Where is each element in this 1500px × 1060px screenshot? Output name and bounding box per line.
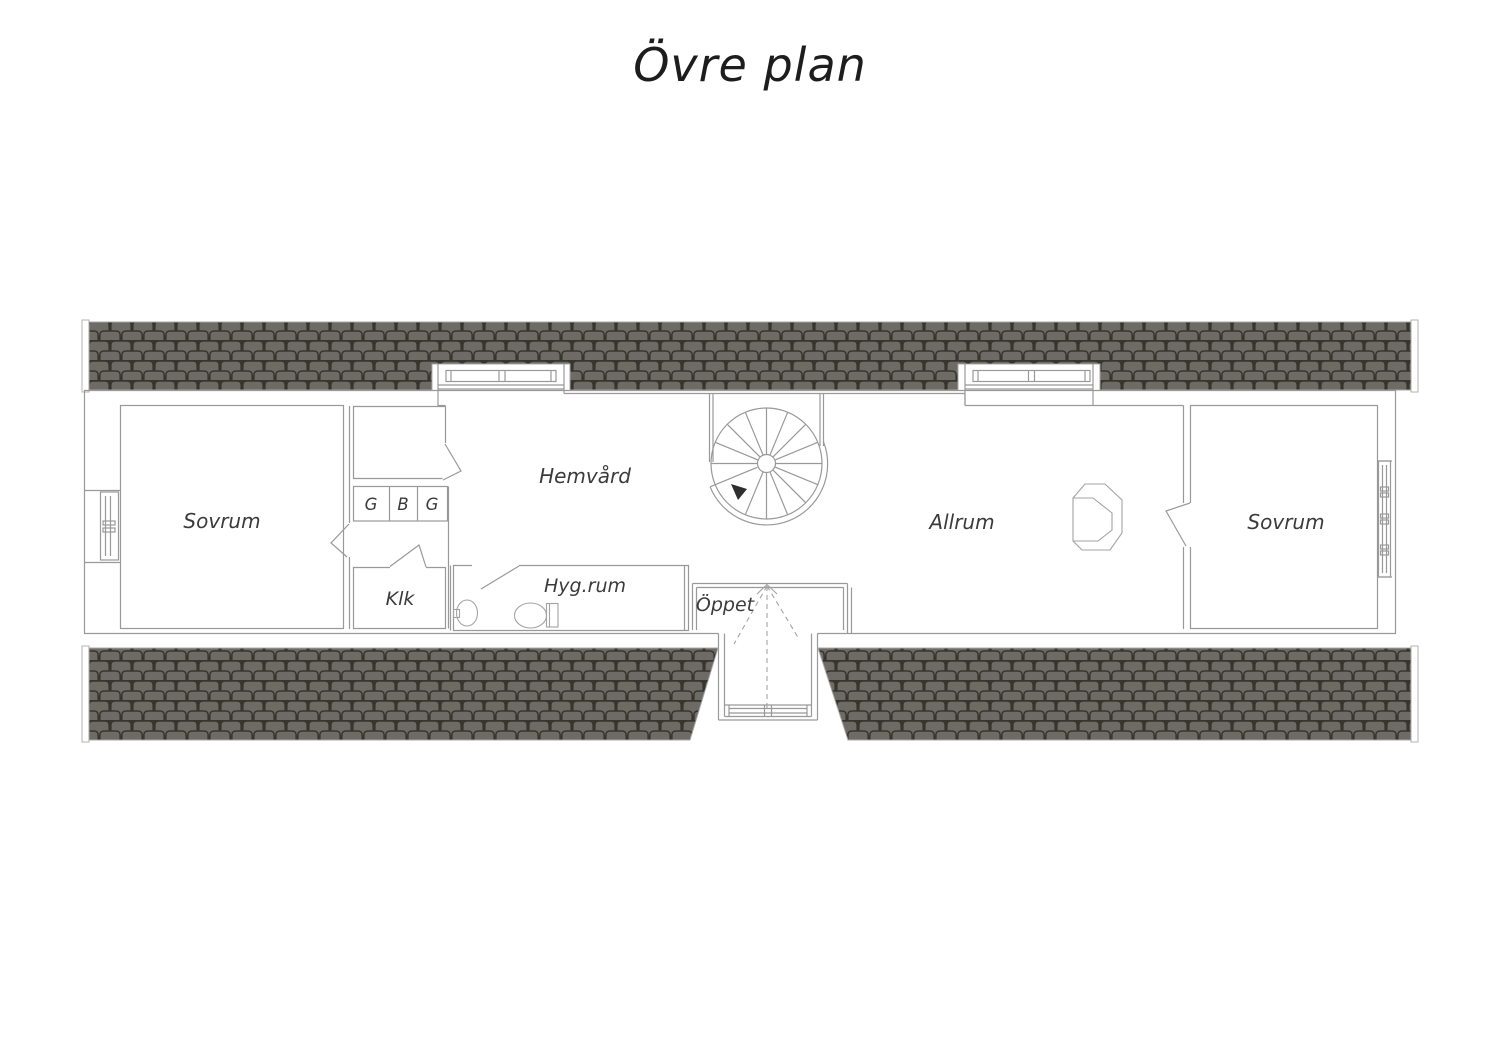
label-open-to-below: Öppet	[696, 593, 756, 616]
dormer-window-top-right	[965, 364, 1093, 406]
label-wardrobe-b: B	[397, 495, 408, 514]
label-wardrobe-g2: G	[426, 495, 439, 514]
dormer-bottom	[719, 634, 818, 721]
sink-icon	[454, 600, 478, 626]
door-living	[1166, 503, 1190, 546]
window-icon-left	[84, 491, 120, 563]
dormer-window-top-left	[438, 364, 564, 406]
room-living	[1166, 406, 1190, 630]
roof-top	[82, 320, 1418, 392]
door-bedroom-left	[331, 524, 349, 557]
toilet-icon	[515, 603, 559, 628]
floor-plan: Sovrum Hemvård G B G Klk Hyg.rum Öppet A…	[0, 0, 1500, 1060]
fireplace-icon	[1073, 484, 1122, 550]
gable-strip-bottom-left	[82, 646, 89, 742]
gable-strip-top-left	[82, 320, 89, 392]
stair-direction-arrow	[731, 484, 747, 500]
roof-bottom-right-shingles	[818, 648, 1411, 740]
door-hygiene	[481, 566, 519, 589]
label-wardrobe-g1: G	[365, 495, 378, 514]
label-homecare: Hemvård	[539, 464, 631, 488]
room-walk-in-closet	[354, 545, 446, 629]
label-bedroom-right: Sovrum	[1247, 510, 1324, 534]
spiral-staircase-icon	[710, 394, 828, 525]
label-hygiene: Hyg.rum	[544, 575, 626, 597]
label-bedroom-left: Sovrum	[183, 509, 260, 533]
roof-bottom-left-shingles	[89, 648, 718, 740]
roof-top-shingles	[89, 322, 1411, 390]
room-storage-top	[354, 407, 462, 481]
gable-strip-top-right	[1411, 320, 1418, 392]
door-storage-top	[443, 444, 461, 480]
label-walk-in-closet: Klk	[386, 588, 416, 610]
roof-bottom	[82, 646, 1418, 742]
gable-strip-bottom-right	[1411, 646, 1418, 742]
door-walk-in-closet	[390, 545, 426, 567]
label-living: Allrum	[927, 510, 994, 534]
window-icon-right	[1377, 461, 1392, 577]
